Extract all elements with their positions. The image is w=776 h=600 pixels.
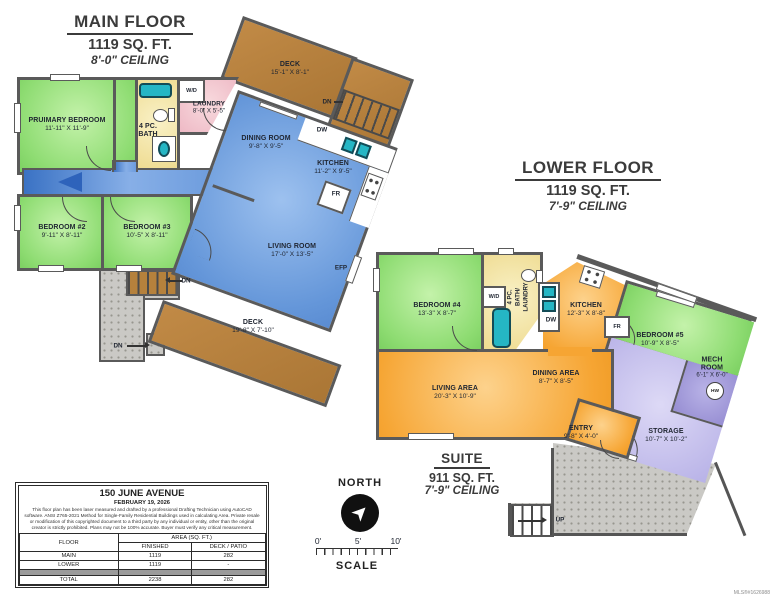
dn-low-leader	[127, 345, 145, 347]
scale-10: 10'	[390, 536, 401, 546]
main-dw-label: DW	[317, 127, 328, 134]
lower-wd-label: W/D	[489, 294, 500, 300]
dn-low-arrow	[145, 342, 150, 348]
main-floor-title: MAIN FLOOR 1119 SQ. FT. 8'-0" CEILING	[52, 12, 208, 67]
lower-kitchen-label: KITCHEN12'-3" X 8'-8"	[567, 302, 605, 318]
mech-room-label: MECH ROOM6'-1" X 6'-0"	[694, 356, 730, 379]
main-deck-lower-label: DECK19'-8" X 7'-10"	[232, 319, 274, 335]
mls-number: MLS®#1626988	[734, 590, 770, 596]
lower-dw-label: DW	[545, 317, 558, 324]
col-floor: FLOOR	[19, 534, 118, 552]
table-total-row: TOTAL 2238 282	[19, 576, 265, 585]
table-row: MAIN 1119 282	[19, 552, 265, 561]
lower-floor-area: 1119 SQ. FT.	[513, 183, 663, 199]
north-label: NORTH	[325, 477, 395, 489]
scale-label: SCALE	[322, 560, 392, 572]
main-floor-ceiling: 8'-0" CEILING	[52, 53, 208, 67]
main-sink	[158, 141, 170, 157]
main-toilet-bowl	[153, 109, 168, 122]
main-floor-title-text: MAIN FLOOR	[67, 12, 193, 35]
bedroom3-label: BEDROOM #310'-5" X 8'-11"	[123, 224, 170, 240]
main-dn-upper-label: DN	[322, 99, 331, 106]
lower-bath-label: 4 PC.BATH/LAUNDRY	[508, 282, 531, 311]
suite-ceiling: 7'-9" CEILING	[398, 485, 526, 497]
front-door-swing	[58, 172, 82, 192]
main-kitchen-label: KITCHEN11'-2" X 9'-5"	[314, 160, 352, 176]
living-area-label: LIVING AREA20'-3" X 10'-9"	[432, 385, 478, 401]
lower-floor-title: LOWER FLOOR 1119 SQ. FT. 7'-9" CEILING	[513, 158, 663, 213]
main-washer-dryer: W/D	[178, 79, 205, 103]
bedroom3-bottom-window	[116, 265, 142, 272]
bedroom2-left-window	[14, 205, 21, 231]
hot-water-tank: HW	[706, 382, 724, 400]
lower-toilet-tank	[536, 270, 543, 283]
lower-sink-top	[542, 286, 556, 298]
bedroom2-bottom-window	[38, 265, 64, 272]
lower-sink-bottom	[542, 300, 556, 312]
closet-wall	[113, 80, 116, 170]
main-efp-label: EFP	[335, 265, 347, 272]
dining-living-wall	[212, 184, 254, 202]
col-deck-patio: DECK / PATIO	[192, 543, 265, 552]
suite-title-text: SUITE	[434, 451, 490, 469]
table-row: LOWER 1119 -	[19, 561, 265, 570]
up-label: UP	[556, 517, 565, 524]
main-fireplace-slot	[345, 255, 362, 284]
lower-floor-ceiling: 7'-9" CEILING	[513, 199, 663, 213]
living-bottom-window	[408, 433, 454, 440]
scale-0: 0'	[315, 536, 321, 546]
lower-toilet-bowl	[521, 269, 536, 282]
bedroom4-label: BEDROOM #413'-3" X 8'-7"	[413, 302, 460, 318]
main-toilet-tank	[168, 108, 175, 122]
primary-top-window	[50, 74, 80, 81]
lower-bathtub	[492, 308, 511, 348]
bedroom2-label: BEDROOM #29'-11" X 8'-11"	[38, 224, 85, 240]
floor-plan-canvas: MAIN FLOOR 1119 SQ. FT. 8'-0" CEILING LO…	[0, 0, 776, 600]
main-dn-mid-label: DN	[181, 278, 190, 285]
bedroom4-window-1	[438, 248, 474, 255]
main-floor-area: 1119 SQ. FT.	[52, 37, 208, 53]
lower-washer-dryer: W/D	[482, 286, 506, 308]
up-arrow	[542, 517, 547, 523]
hw-label: HW	[711, 389, 719, 394]
main-living-label: LIVING ROOM17'-0" X 13'-5"	[268, 243, 316, 259]
lower-floor-title-text: LOWER FLOOR	[515, 158, 661, 181]
main-hall-bath-nook	[112, 160, 138, 172]
dining-area-label: DINING AREA8'-7" X 8'-5"	[532, 370, 579, 386]
entry-label: ENTRY9'-8" X 4'-0"	[564, 425, 598, 441]
dn-mid-arrow	[165, 277, 170, 283]
compass-arrow-icon: ➤	[347, 500, 373, 526]
address: 150 JUNE AVENUE	[19, 488, 266, 499]
suite-area: 911 SQ. FT.	[398, 471, 526, 485]
compass-icon: ➤	[341, 494, 379, 532]
suite-title: SUITE 911 SQ. FT. 7'-9" CEILING	[398, 450, 526, 497]
scale-5: 5'	[355, 536, 361, 546]
main-wd-label: W/D	[186, 88, 197, 94]
patio-right-edge	[714, 462, 746, 536]
main-fr-label: FR	[332, 191, 340, 198]
main-dining-label: DINING ROOM9'-8" X 9'-5"	[241, 135, 290, 151]
area-table: FLOOR AREA (SQ. FT.) FINISHED DECK / PAT…	[19, 533, 266, 585]
col-area: AREA (SQ. FT.)	[118, 534, 265, 543]
main-bathtub	[139, 83, 172, 98]
scale-ruler	[316, 548, 398, 555]
bedroom5-label: BEDROOM #510'-9" X 8'-5"	[636, 332, 683, 348]
lower-fr-label: FR	[613, 324, 620, 330]
storage-label: STORAGE10'-7" X 10'-2"	[645, 428, 687, 444]
disclaimer: This floor plan has been laser measured …	[19, 506, 266, 534]
main-hallway	[22, 168, 218, 196]
dn-mid-leader	[170, 280, 182, 282]
dn-upper-leader	[334, 101, 343, 103]
primary-left-window	[14, 103, 21, 133]
main-laundry-label: LAUNDRY8'-0" X 5'-5"	[193, 101, 225, 116]
main-dn-low-label: DN	[113, 343, 122, 350]
kitchen-dining-opening	[548, 347, 592, 356]
patio-stair-edge	[551, 448, 554, 505]
lower-fridge-box: FR	[604, 316, 630, 338]
title-block: 150 JUNE AVENUE FEBRUARY 19, 2026 This f…	[15, 482, 269, 588]
bedroom4-window-2	[498, 248, 514, 255]
main-deck-upper-label: DECK15'-1" X 8'-1"	[271, 61, 309, 77]
col-finished: FINISHED	[118, 543, 191, 552]
living-door-arc	[186, 229, 218, 261]
up-leader	[518, 520, 542, 522]
main-bath-label: 4 PC.BATH	[138, 123, 157, 139]
bedroom4-left-window	[373, 268, 380, 292]
primary-bedroom-label: PRUIMARY BEDROOM11'-11" X 11'-9"	[28, 117, 105, 133]
